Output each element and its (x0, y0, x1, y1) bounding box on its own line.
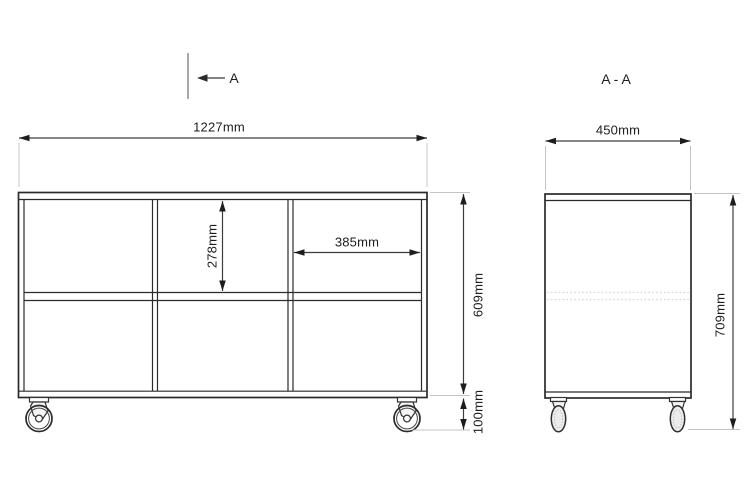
dim-label-overall-height: 709mm (713, 293, 728, 337)
dim-overall-width (19, 135, 427, 142)
drawing-canvas (0, 0, 750, 500)
front-left-caster (26, 398, 52, 432)
arrowhead-up-icon (730, 195, 737, 206)
dim-label-body-height: 609mm (471, 273, 486, 317)
arrowhead-up-icon (460, 399, 467, 410)
dim-label-compartment-width: 385mm (335, 235, 379, 250)
section-cut-marker (188, 53, 225, 99)
dim-body-height (460, 194, 467, 394)
front-right-caster (394, 398, 420, 432)
dim-label-overall-width: 1227mm (193, 120, 245, 135)
arrowhead-left-icon (19, 135, 30, 142)
arrowhead-up-icon (460, 194, 467, 205)
section-arrow-head-icon (197, 74, 208, 81)
side-left-caster (551, 398, 567, 432)
dim-label-depth: 450mm (596, 123, 640, 138)
arrowhead-right-icon (680, 138, 691, 145)
dim-label-compartment-height: 278mm (205, 224, 220, 268)
section-view-title: A - A (601, 71, 631, 87)
technical-drawing-sheet: A A - A 1227mm 450mm 385mm 278mm 609mm 1… (0, 0, 750, 500)
section-marker-label: A (229, 70, 238, 86)
arrowhead-down-icon (730, 419, 737, 430)
dim-caster-height (460, 399, 467, 430)
dim-overall-height (730, 195, 737, 429)
arrowhead-left-icon (546, 138, 557, 145)
dim-label-caster-height: 100mm (471, 390, 486, 434)
section-view-a-a (545, 194, 691, 432)
dim-depth (546, 138, 691, 145)
arrowhead-down-icon (460, 384, 467, 395)
arrowhead-right-icon (417, 135, 428, 142)
side-right-caster (670, 398, 686, 432)
side-view-outline (545, 194, 691, 398)
arrowhead-down-icon (460, 419, 467, 430)
